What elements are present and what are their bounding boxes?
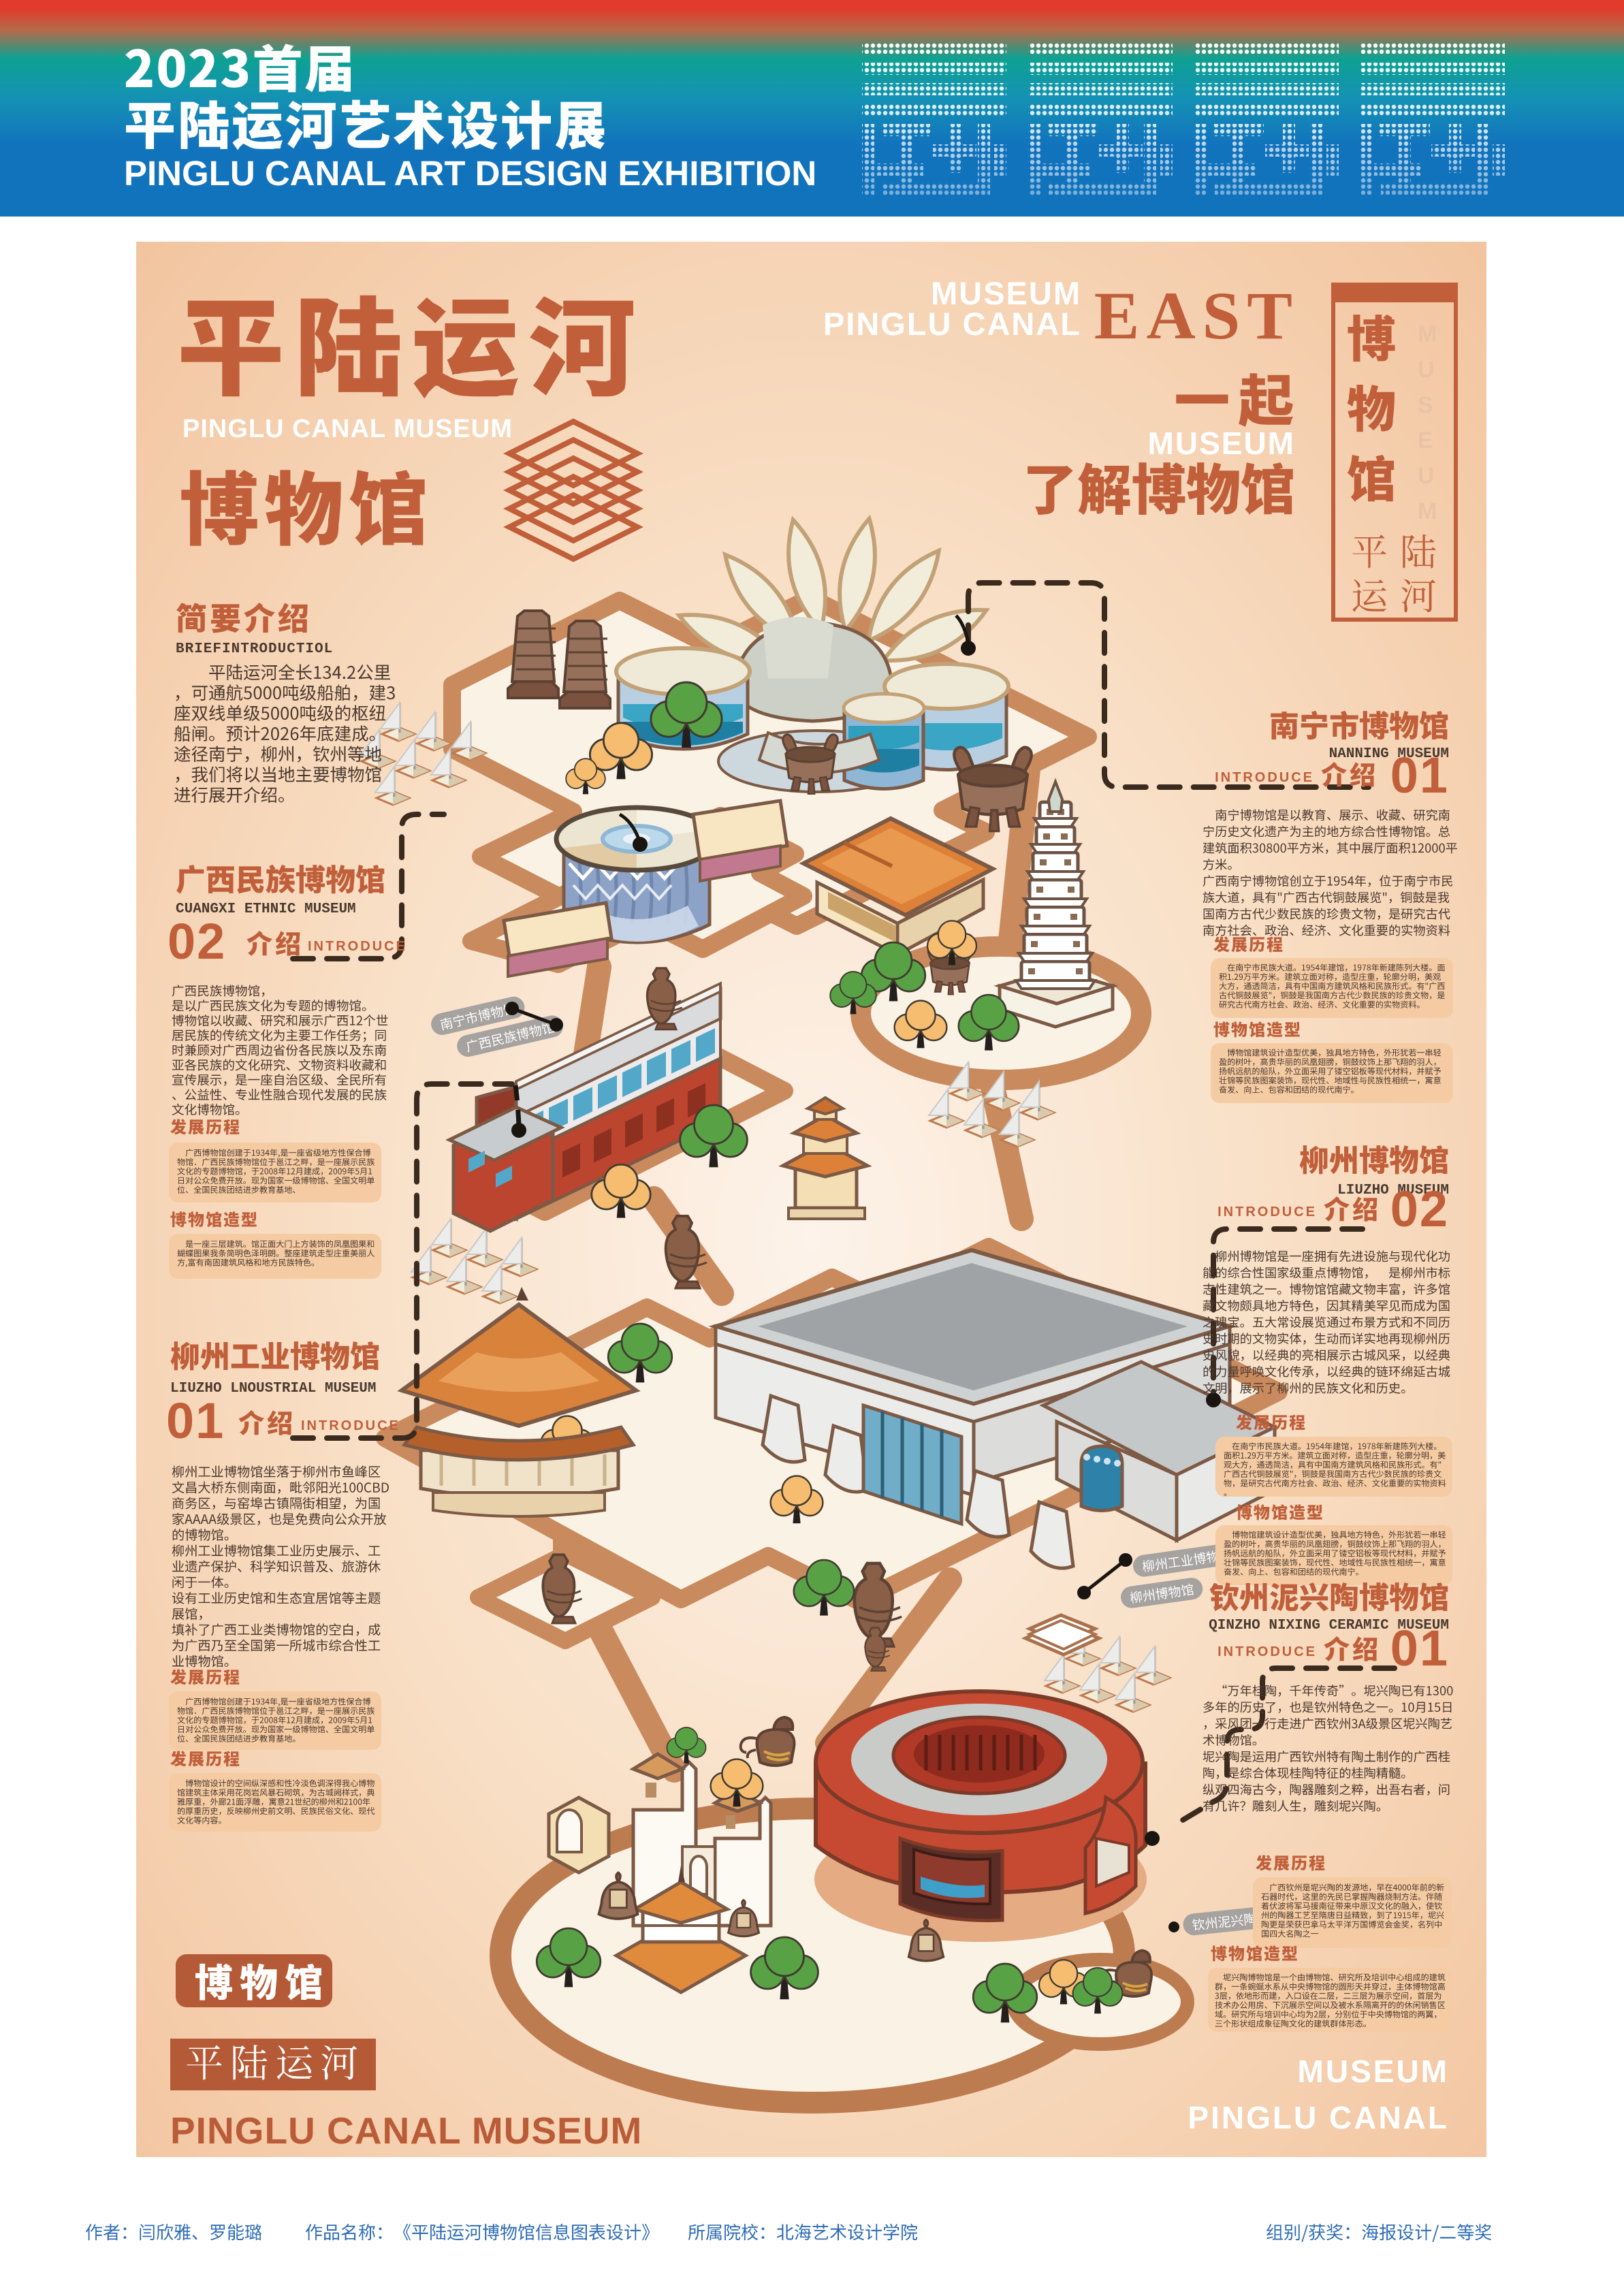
svg-text:INTRODUCE: INTRODUCE	[1217, 1644, 1317, 1659]
svg-text:01: 01	[166, 1392, 225, 1449]
svg-text:02: 02	[1390, 1181, 1449, 1237]
svg-text:M: M	[1418, 498, 1437, 524]
svg-text:M: M	[1418, 321, 1437, 347]
svg-text:INTRODUCE: INTRODUCE	[1217, 1205, 1317, 1219]
svg-text:S: S	[1418, 392, 1433, 418]
svg-text:01: 01	[1390, 1620, 1449, 1676]
svg-text:INTRODUCE: INTRODUCE	[301, 1418, 400, 1433]
svg-text:PINGLU CANAL: PINGLU CANAL	[1188, 2100, 1449, 2135]
svg-text:PINGLU CANAL MUSEUM: PINGLU CANAL MUSEUM	[170, 2109, 642, 2152]
svg-text:MUSEUM: MUSEUM	[1298, 2054, 1449, 2089]
svg-text:U: U	[1418, 463, 1435, 489]
svg-text:U: U	[1418, 357, 1435, 383]
svg-text:PINGLU CANAL MUSEUM: PINGLU CANAL MUSEUM	[182, 415, 513, 443]
svg-text:E: E	[1418, 428, 1433, 453]
svg-text:PINGLU CANAL: PINGLU CANAL	[823, 306, 1081, 342]
svg-text:01: 01	[1390, 747, 1449, 803]
svg-text:INTRODUCE: INTRODUCE	[1215, 770, 1314, 785]
svg-text:EAST: EAST	[1094, 278, 1299, 353]
svg-text:02: 02	[168, 913, 226, 970]
svg-text:MUSEUM: MUSEUM	[1148, 426, 1295, 461]
svg-text:PINGLU CANAL ART DESIGN EXHIBI: PINGLU CANAL ART DESIGN EXHIBITION	[124, 154, 816, 193]
svg-text:BRIEFINTRODUCTIOL: BRIEFINTRODUCTIOL	[176, 641, 333, 657]
svg-text:INTRODUCE: INTRODUCE	[308, 939, 407, 954]
